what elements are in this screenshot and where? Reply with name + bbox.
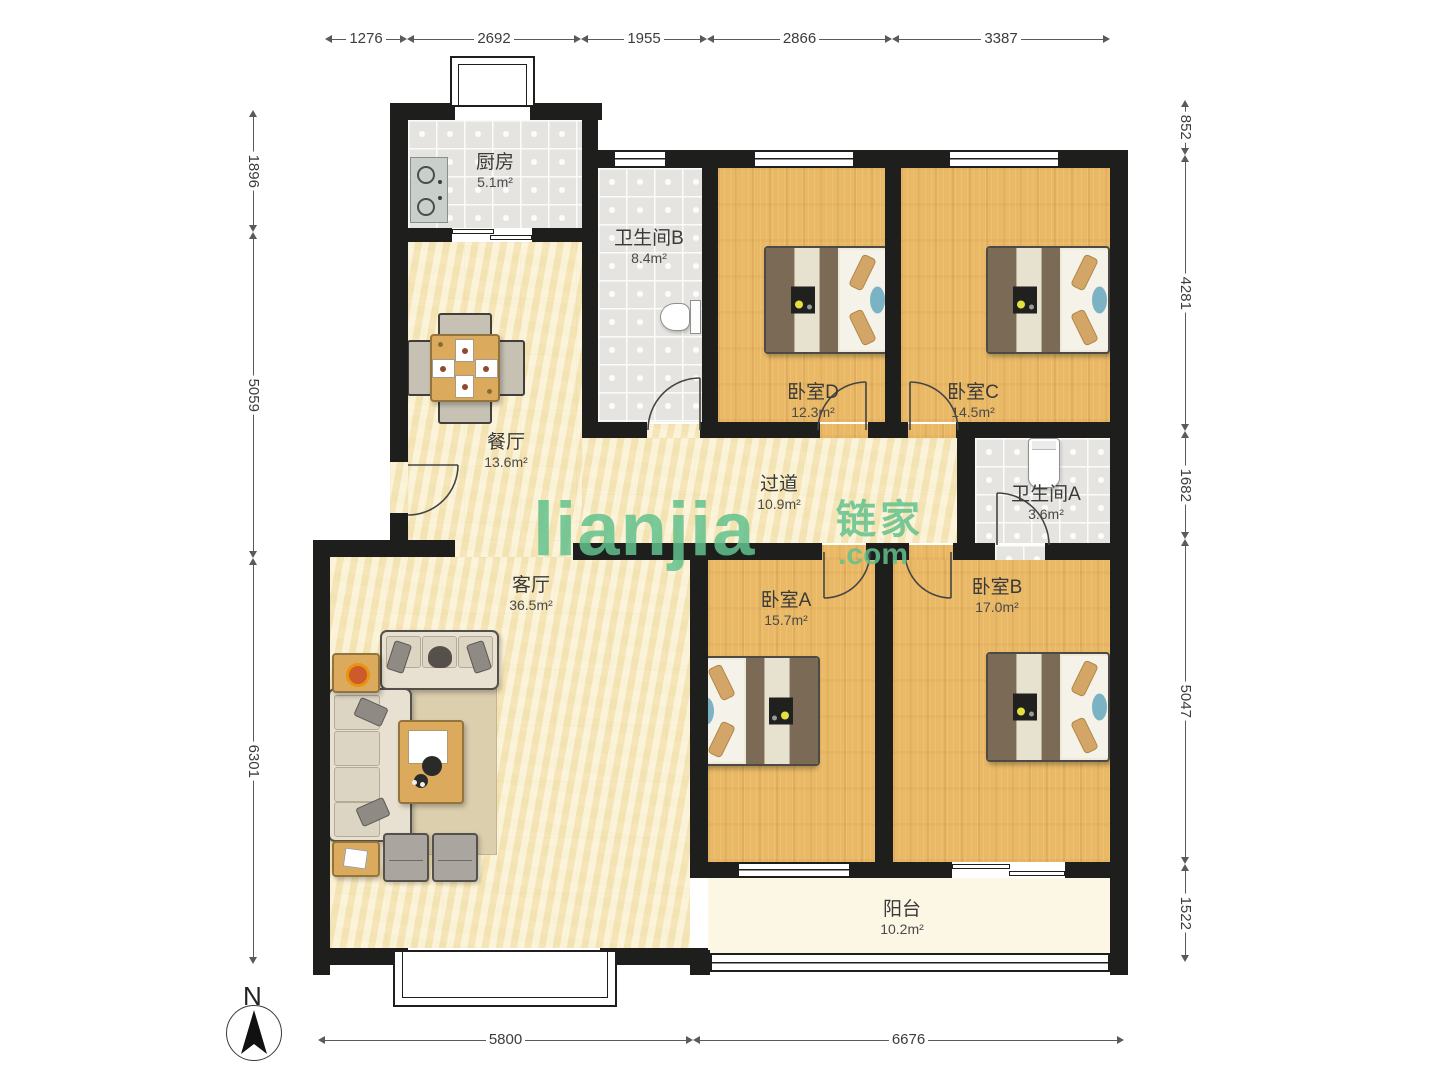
dim-left-0: 1896 [244, 110, 262, 232]
room-label-dining: 餐厅13.6m² [484, 432, 528, 470]
watermark-tld: .com [838, 540, 908, 570]
watermark-brand: lianjia [533, 492, 755, 568]
dim-top-3: 2866 [707, 30, 892, 48]
room-label-bedroom-a: 卧室A15.7m² [761, 590, 812, 628]
dim-left-1: 5059 [244, 232, 262, 558]
room-label-bathroom-b: 卫生间B8.4m² [614, 228, 684, 266]
door-arc-bathroom-b [648, 378, 700, 430]
dim-bottom-1: 6676 [693, 1031, 1124, 1049]
dim-right-4: 1522 [1176, 864, 1194, 962]
compass [226, 1005, 282, 1061]
room-label-bedroom-b: 卧室B17.0m² [972, 577, 1023, 615]
door-arc-bedroom-b [905, 552, 951, 598]
door-arc-entrance [408, 465, 458, 515]
dim-right-3: 5047 [1176, 539, 1194, 864]
dim-right-1: 4281 [1176, 155, 1194, 431]
dim-right-0: 852 [1176, 100, 1194, 155]
dim-left-2: 6301 [244, 558, 262, 964]
room-label-balcony: 阳台10.2m² [880, 899, 924, 937]
dim-right-2: 1682 [1176, 431, 1194, 539]
room-label-bedroom-c: 卧室C14.5m² [947, 382, 999, 420]
room-label-bathroom-a: 卫生间A3.6m² [1011, 484, 1081, 522]
dim-top-2: 1955 [581, 30, 707, 48]
room-label-bedroom-d: 卧室D12.3m² [787, 382, 839, 420]
room-label-kitchen: 厨房5.1m² [476, 152, 514, 190]
room-label-hallway: 过道10.9m² [757, 474, 801, 512]
dim-bottom-0: 5800 [318, 1031, 693, 1049]
floorplan-canvas: lianjia 链家 .com 厨房5.1m² 卫生间B8.4m² 卧室D12.… [0, 0, 1440, 1080]
north-needle-icon [227, 1006, 281, 1060]
room-label-living: 客厅36.5m² [509, 575, 553, 613]
dim-top-4: 3387 [892, 30, 1110, 48]
dim-top-1: 2692 [407, 30, 581, 48]
dim-top-0: 1276 [325, 30, 407, 48]
watermark-cn: 链家 [836, 500, 924, 540]
